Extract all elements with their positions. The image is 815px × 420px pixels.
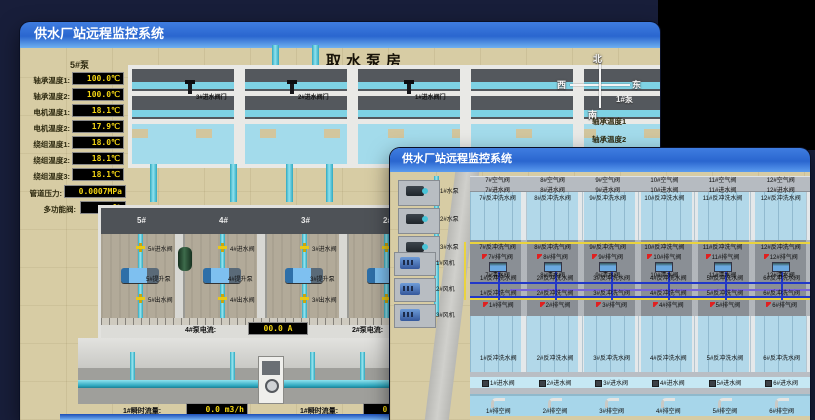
valve-label: 3#进水阀: [312, 244, 337, 253]
pipe-pillar: [326, 164, 333, 202]
compass-west: 西: [557, 78, 566, 91]
valve-icon[interactable]: [300, 243, 309, 252]
backwash-water-valve-label: 7#反冲洗水阀: [479, 196, 516, 202]
right-panel-label: 轴承温度2: [592, 134, 626, 145]
exhaust-valve-flag-label: 6#排气阀: [766, 302, 797, 309]
field-value: 100.0℃: [72, 72, 124, 85]
valve-icon[interactable]: [136, 243, 145, 252]
backwash-air-valve-label: 1#反冲洗气阀: [480, 291, 517, 297]
exhaust-valve-flag-label: 12#排气阀: [764, 254, 798, 261]
exhaust-valve-flag-label: 8#排气阀: [537, 254, 568, 261]
exhaust-valve-flag-label: 4#排气阀: [653, 302, 684, 309]
exhaust-valve-flag-label: 5#排气阀: [710, 302, 741, 309]
backwash-water-row-top: 7#反冲洗水阀8#反冲洗水阀9#反冲洗水阀10#反冲洗水阀11#反冲洗水阀12#…: [470, 196, 810, 202]
window-titlebar[interactable]: 供水厂站远程监控系统: [390, 148, 810, 172]
pump-label: 4#提升泵: [228, 274, 253, 283]
pump-label: 1#水泵: [440, 186, 459, 195]
drain-valve-row: 1#排空阀2#排空阀3#排空阀4#排空阀5#排空阀6#排空阀: [470, 398, 810, 415]
window-title: 供水厂站远程监控系统: [402, 153, 512, 165]
drain-valve-label: 1#排空阀: [486, 398, 511, 415]
exhaust-valve-flag-label: 10#排气阀: [647, 254, 681, 261]
inlet-valve-label: 1#进水阀: [482, 380, 515, 387]
air-valve-row: 7#空气阀8#空气阀9#空气阀10#空气阀11#空气阀12#空气阀: [470, 178, 810, 184]
right-panel-header: 1#泵: [616, 94, 633, 105]
valve-icon[interactable]: [188, 84, 192, 94]
drain-valve-label: 6#排空阀: [769, 398, 794, 415]
bay-divider: [339, 234, 349, 319]
field-value: 0.0007MPa: [64, 185, 126, 198]
walk-line: [470, 242, 810, 244]
valve-icon[interactable]: [290, 84, 294, 94]
backwash-water-valve-label: 4#反冲洗水阀: [650, 356, 687, 362]
backwash-water-valve-label: 6#反冲洗水阀: [763, 276, 800, 282]
pump-label: 5#提升泵: [146, 274, 171, 283]
inlet-valve-label: 4#进水阀: [652, 380, 685, 387]
backwash-water-valve-label: 3#反冲洗水阀: [593, 356, 630, 362]
backwash-air-row-top: 7#反冲洗气阀8#反冲洗气阀9#反冲洗气阀10#反冲洗气阀11#反冲洗气阀12#…: [470, 245, 810, 251]
walk-line: [464, 242, 466, 300]
inlet-valve-row-top: 7#进水阀8#进水阀9#进水阀10#进水阀11#进水阀12#进水阀: [470, 188, 810, 194]
field-label: 轴承温度2:: [26, 91, 70, 102]
bay-number: 5#: [137, 216, 146, 225]
backwash-air-valve-label: 12#反冲洗气阀: [761, 245, 801, 251]
blower-label: 3#风机: [436, 310, 455, 319]
valve-label: 4#进水阀: [230, 244, 255, 253]
backwash-air-valve-label: 4#反冲洗气阀: [650, 291, 687, 297]
valve-icon[interactable]: [218, 294, 227, 303]
bay-divider: [257, 234, 267, 319]
field-value: 18.1℃: [72, 152, 124, 165]
intake-valve-label: 1#进水阀门: [415, 92, 446, 101]
inlet-valve-label: 8#进水阀: [540, 188, 565, 194]
backwash-water-valve-label: 11#反冲洗水阀: [703, 196, 743, 202]
drain-valve-label: 3#排空阀: [599, 398, 624, 415]
field-value: 18.1℃: [72, 104, 124, 117]
right-panel-label: 轴承温度1: [592, 116, 626, 127]
pump-label: 3#水泵: [440, 242, 459, 251]
backwash-air-valve-label: 7#反冲洗气阀: [479, 245, 516, 251]
air-valve-label: 11#空气阀: [709, 178, 737, 184]
walk-line: [470, 298, 810, 300]
field-label: 绕组温度3:: [26, 171, 70, 182]
drain-valve-label: 5#排空阀: [713, 398, 738, 415]
backwash-air-valve-label: 10#反冲洗气阀: [644, 245, 684, 251]
backwash-water-valve-label: 1#反冲洗水阀: [480, 356, 517, 362]
background-black-area: [658, 0, 815, 150]
inlet-valve-label: 12#进水阀: [767, 188, 795, 194]
exhaust-valve-flag-label: 2#排气阀: [540, 302, 571, 309]
blower-label: 1#风机: [436, 258, 455, 267]
air-valve-label: 12#空气阀: [767, 178, 795, 184]
filter-pools-bottom: [470, 316, 810, 372]
inlet-valve-label: 6#进水阀: [765, 380, 798, 387]
inlet-valve-label: 10#进水阀: [650, 188, 678, 194]
bay-number: 4#: [219, 216, 228, 225]
backwash-water-valve-label: 2#反冲洗水阀: [537, 356, 574, 362]
valve-label: 3#出水阀: [312, 295, 337, 304]
backwash-water-valve-label: 1#反冲洗水阀: [480, 276, 517, 282]
pipe-blue: [470, 282, 810, 284]
pump-icon[interactable]: [406, 186, 424, 196]
blower-icon[interactable]: [400, 309, 420, 321]
backwash-air-valve-label: 6#反冲洗气阀: [763, 291, 800, 297]
tank-icon[interactable]: [178, 247, 192, 271]
backwash-air-valve-label: 2#反冲洗气阀: [537, 291, 574, 297]
exhaust-valve-flag-label: 7#排气阀: [482, 254, 513, 261]
backwash-air-valve-label: 8#反冲洗气阀: [534, 245, 571, 251]
backwash-water-valve-label: 2#反冲洗水阀: [537, 276, 574, 282]
field-label: 多功能阀:: [32, 204, 76, 215]
valve-icon[interactable]: [407, 84, 411, 94]
air-valve-label: 9#空气阀: [595, 178, 620, 184]
valve-icon[interactable]: [300, 294, 309, 303]
valve-label: 5#出水阀: [148, 295, 173, 304]
valve-icon[interactable]: [136, 294, 145, 303]
exhaust-valve-flag-label: 1#排气阀: [483, 302, 514, 309]
blower-icon[interactable]: [400, 257, 420, 269]
inlet-valve-row-bottom: 1#进水阀2#进水阀3#进水阀4#进水阀5#进水阀6#进水阀: [470, 380, 810, 387]
air-valve-label: 7#空气阀: [485, 178, 510, 184]
valve-label: 4#出水阀: [230, 295, 255, 304]
field-label: 电机温度2:: [26, 123, 70, 134]
drain-valve-label: 4#排空阀: [656, 398, 681, 415]
backwash-water-row-pool: 1#反冲洗水阀2#反冲洗水阀3#反冲洗水阀4#反冲洗水阀5#反冲洗水阀6#反冲洗…: [470, 356, 810, 362]
inlet-valve-label: 7#进水阀: [485, 188, 510, 194]
air-valve-label: 10#空气阀: [650, 178, 678, 184]
field-value: 100.0℃: [72, 88, 124, 101]
field-value: 18.1℃: [72, 168, 124, 181]
backwash-water-valve-label: 12#反冲洗水阀: [761, 196, 801, 202]
field-value: 18.0℃: [72, 136, 124, 149]
intake-valve-label: 2#进水阀门: [298, 92, 329, 101]
pipe-pillar: [286, 164, 293, 202]
backwash-water-valve-label: 10#反冲洗水阀: [644, 196, 684, 202]
backwash-water-valve-label: 8#反冲洗水阀: [534, 196, 571, 202]
pump-label: 3#提升泵: [310, 274, 335, 283]
pipe-pillar: [230, 164, 237, 202]
inlet-valve-label: 9#进水阀: [595, 188, 620, 194]
inlet-valve-label: 2#进水阀: [539, 380, 572, 387]
inlet-valve-label: 5#进水阀: [709, 380, 742, 387]
exhaust-valve-flag-label: 3#排气阀: [596, 302, 627, 309]
field-label: 轴承温度1:: [26, 75, 70, 86]
field-label: 绕组温度2:: [26, 155, 70, 166]
backwash-air-valve-label: 5#反冲洗气阀: [707, 291, 744, 297]
pump-icon[interactable]: [406, 242, 424, 252]
valve-icon[interactable]: [218, 243, 227, 252]
exhaust-valve-flag-label: 9#排气阀: [592, 254, 623, 261]
current-label: 4#泵电流:: [185, 325, 216, 335]
blower-label: 2#风机: [436, 284, 455, 293]
backwash-water-valve-label: 5#反冲洗水阀: [707, 276, 744, 282]
backwash-air-valve-label: 3#反冲洗气阀: [593, 291, 630, 297]
desktop: { "back_window": { "title": "供水厂站远程监控系统"…: [0, 0, 815, 420]
pump5-panel-header: 5#泵: [70, 58, 89, 71]
compass-east: 东: [632, 78, 641, 91]
backwash-water-valve-label: 4#反冲洗水阀: [650, 276, 687, 282]
backwash-air-valve-label: 11#反冲洗气阀: [703, 245, 743, 251]
ground-strip: [470, 416, 810, 420]
field-label: 绕组温度1:: [26, 139, 70, 150]
backwash-air-row-bottom: 1#反冲洗气阀2#反冲洗气阀3#反冲洗气阀4#反冲洗气阀5#反冲洗气阀6#反冲洗…: [470, 291, 810, 297]
exhaust-valve-row-bottom: 1#排气阀2#排气阀3#排气阀4#排气阀5#排气阀6#排气阀: [470, 302, 810, 309]
window-filter-pool: 供水厂站远程监控系统 1#V滤池 1#水泵 2#水泵 3#水泵 1#风机 2#风…: [390, 148, 810, 420]
inlet-valve-label: 11#进水阀: [709, 188, 737, 194]
backwash-water-row-mid: 1#反冲洗水阀2#反冲洗水阀3#反冲洗水阀4#反冲洗水阀5#反冲洗水阀6#反冲洗…: [470, 276, 810, 282]
current-value: 00.0 A: [248, 322, 308, 335]
backwash-water-valve-label: 6#反冲洗水阀: [763, 356, 800, 362]
pipe-pillar: [150, 164, 157, 202]
drain-valve-label: 2#排空阀: [543, 398, 568, 415]
window-title: 供水厂站远程监控系统: [34, 26, 164, 41]
valve-label: 5#进水阀: [148, 244, 173, 253]
blower-icon[interactable]: [400, 283, 420, 295]
exhaust-valve-flag-label: 11#排气阀: [706, 254, 740, 261]
backwash-water-valve-label: 3#反冲洗水阀: [593, 276, 630, 282]
backwash-water-valve-label: 5#反冲洗水阀: [707, 356, 744, 362]
air-valve-label: 8#空气阀: [540, 178, 565, 184]
exhaust-valve-row-top: 7#排气阀8#排气阀9#排气阀10#排气阀11#排气阀12#排气阀: [470, 254, 810, 261]
field-value: 17.9℃: [72, 120, 124, 133]
field-label: 电机温度1:: [26, 107, 70, 118]
window-titlebar[interactable]: 供水厂站远程监控系统: [20, 22, 660, 48]
current-label: 2#泵电流:: [352, 325, 383, 335]
bay-number: 3#: [301, 216, 310, 225]
field-label: 管道压力:: [22, 188, 62, 199]
inlet-valve-label: 3#进水阀: [595, 380, 628, 387]
compass-north: 北: [593, 52, 602, 65]
backwash-water-valve-label: 9#反冲洗水阀: [589, 196, 626, 202]
intake-valve-label: 3#进水阀门: [196, 92, 227, 101]
camera-icon[interactable]: [258, 356, 284, 404]
pump-label: 2#水泵: [440, 214, 459, 223]
backwash-air-valve-label: 9#反冲洗气阀: [589, 245, 626, 251]
pump-icon[interactable]: [406, 214, 424, 224]
